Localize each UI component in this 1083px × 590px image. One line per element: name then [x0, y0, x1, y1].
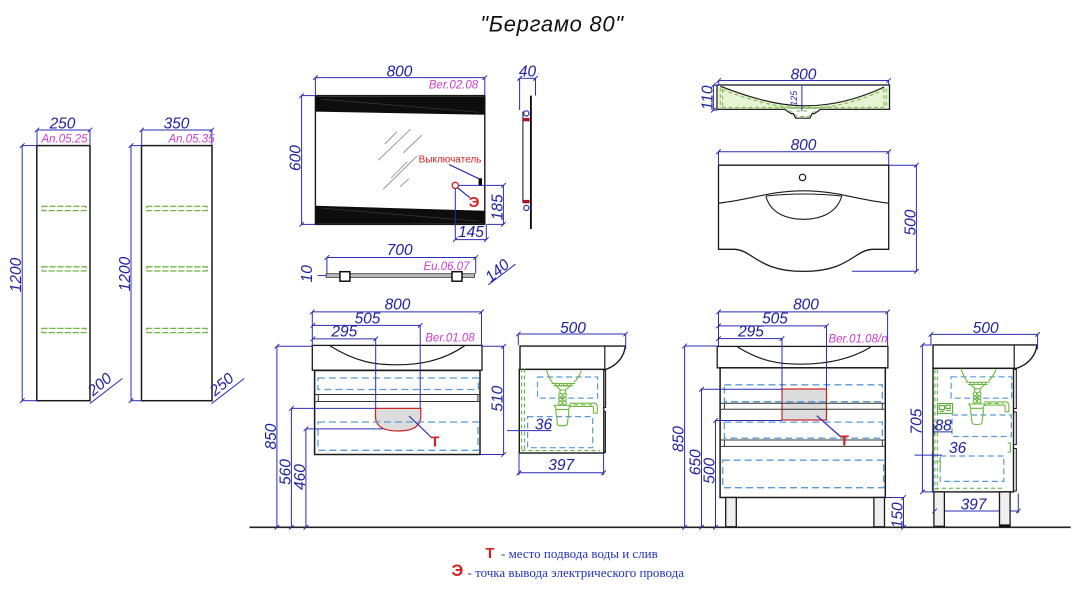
svg-text:800: 800 [387, 64, 413, 81]
svg-text:10: 10 [299, 265, 316, 283]
svg-text:397: 397 [548, 457, 575, 474]
svg-text:- точка вывода электрического: - точка вывода электрического провода [468, 565, 685, 580]
svg-text:600: 600 [288, 145, 305, 171]
svg-text:- место подвода воды и слив: - место подвода воды и слив [501, 546, 658, 561]
svg-text:36: 36 [949, 440, 967, 457]
svg-text:350: 350 [164, 116, 190, 133]
svg-text:150: 150 [890, 502, 907, 528]
svg-text:Eu.06.07: Eu.06.07 [423, 261, 470, 273]
svg-text:An.05.25: An.05.25 [40, 133, 88, 145]
svg-text:"Бергамо 80": "Бергамо 80" [480, 12, 624, 37]
svg-text:Т: Т [430, 433, 439, 450]
svg-text:800: 800 [793, 297, 819, 314]
svg-text:510: 510 [490, 385, 507, 411]
svg-text:505: 505 [355, 311, 381, 328]
svg-text:Э: Э [469, 194, 480, 211]
svg-text:88: 88 [935, 417, 953, 434]
svg-text:Т: Т [486, 546, 495, 562]
svg-text:Ber.02.08: Ber.02.08 [429, 80, 479, 92]
svg-text:505: 505 [762, 311, 788, 328]
svg-text:An.05.35: An.05.35 [167, 133, 215, 145]
svg-text:36: 36 [535, 416, 553, 433]
svg-text:500: 500 [560, 320, 586, 337]
svg-text:800: 800 [791, 137, 817, 154]
svg-text:Ber.01.08/n: Ber.01.08/n [828, 334, 887, 346]
svg-text:295: 295 [330, 324, 357, 341]
svg-text:700: 700 [387, 242, 413, 259]
svg-text:460: 460 [292, 464, 309, 490]
svg-text:500: 500 [702, 457, 719, 483]
svg-text:1200: 1200 [117, 256, 134, 291]
svg-text:295: 295 [737, 324, 764, 341]
svg-text:Ber.01.08: Ber.01.08 [425, 332, 475, 344]
svg-text:500: 500 [902, 209, 919, 235]
svg-text:397: 397 [961, 496, 988, 513]
svg-text:500: 500 [973, 320, 999, 337]
svg-text:40: 40 [519, 64, 537, 81]
svg-text:850: 850 [671, 426, 688, 452]
svg-text:850: 850 [263, 423, 280, 449]
svg-text:Т: Т [840, 432, 849, 449]
svg-text:110: 110 [699, 85, 716, 110]
svg-text:705: 705 [908, 408, 925, 434]
svg-text:800: 800 [385, 296, 411, 313]
svg-text:1200: 1200 [8, 257, 25, 292]
svg-text:Выключатель: Выключатель [419, 155, 482, 166]
svg-text:125: 125 [789, 90, 799, 106]
svg-text:145: 145 [458, 224, 484, 241]
svg-text:250: 250 [49, 116, 76, 133]
svg-text:800: 800 [791, 66, 817, 83]
svg-text:185: 185 [489, 194, 506, 220]
svg-text:Э: Э [452, 562, 464, 580]
